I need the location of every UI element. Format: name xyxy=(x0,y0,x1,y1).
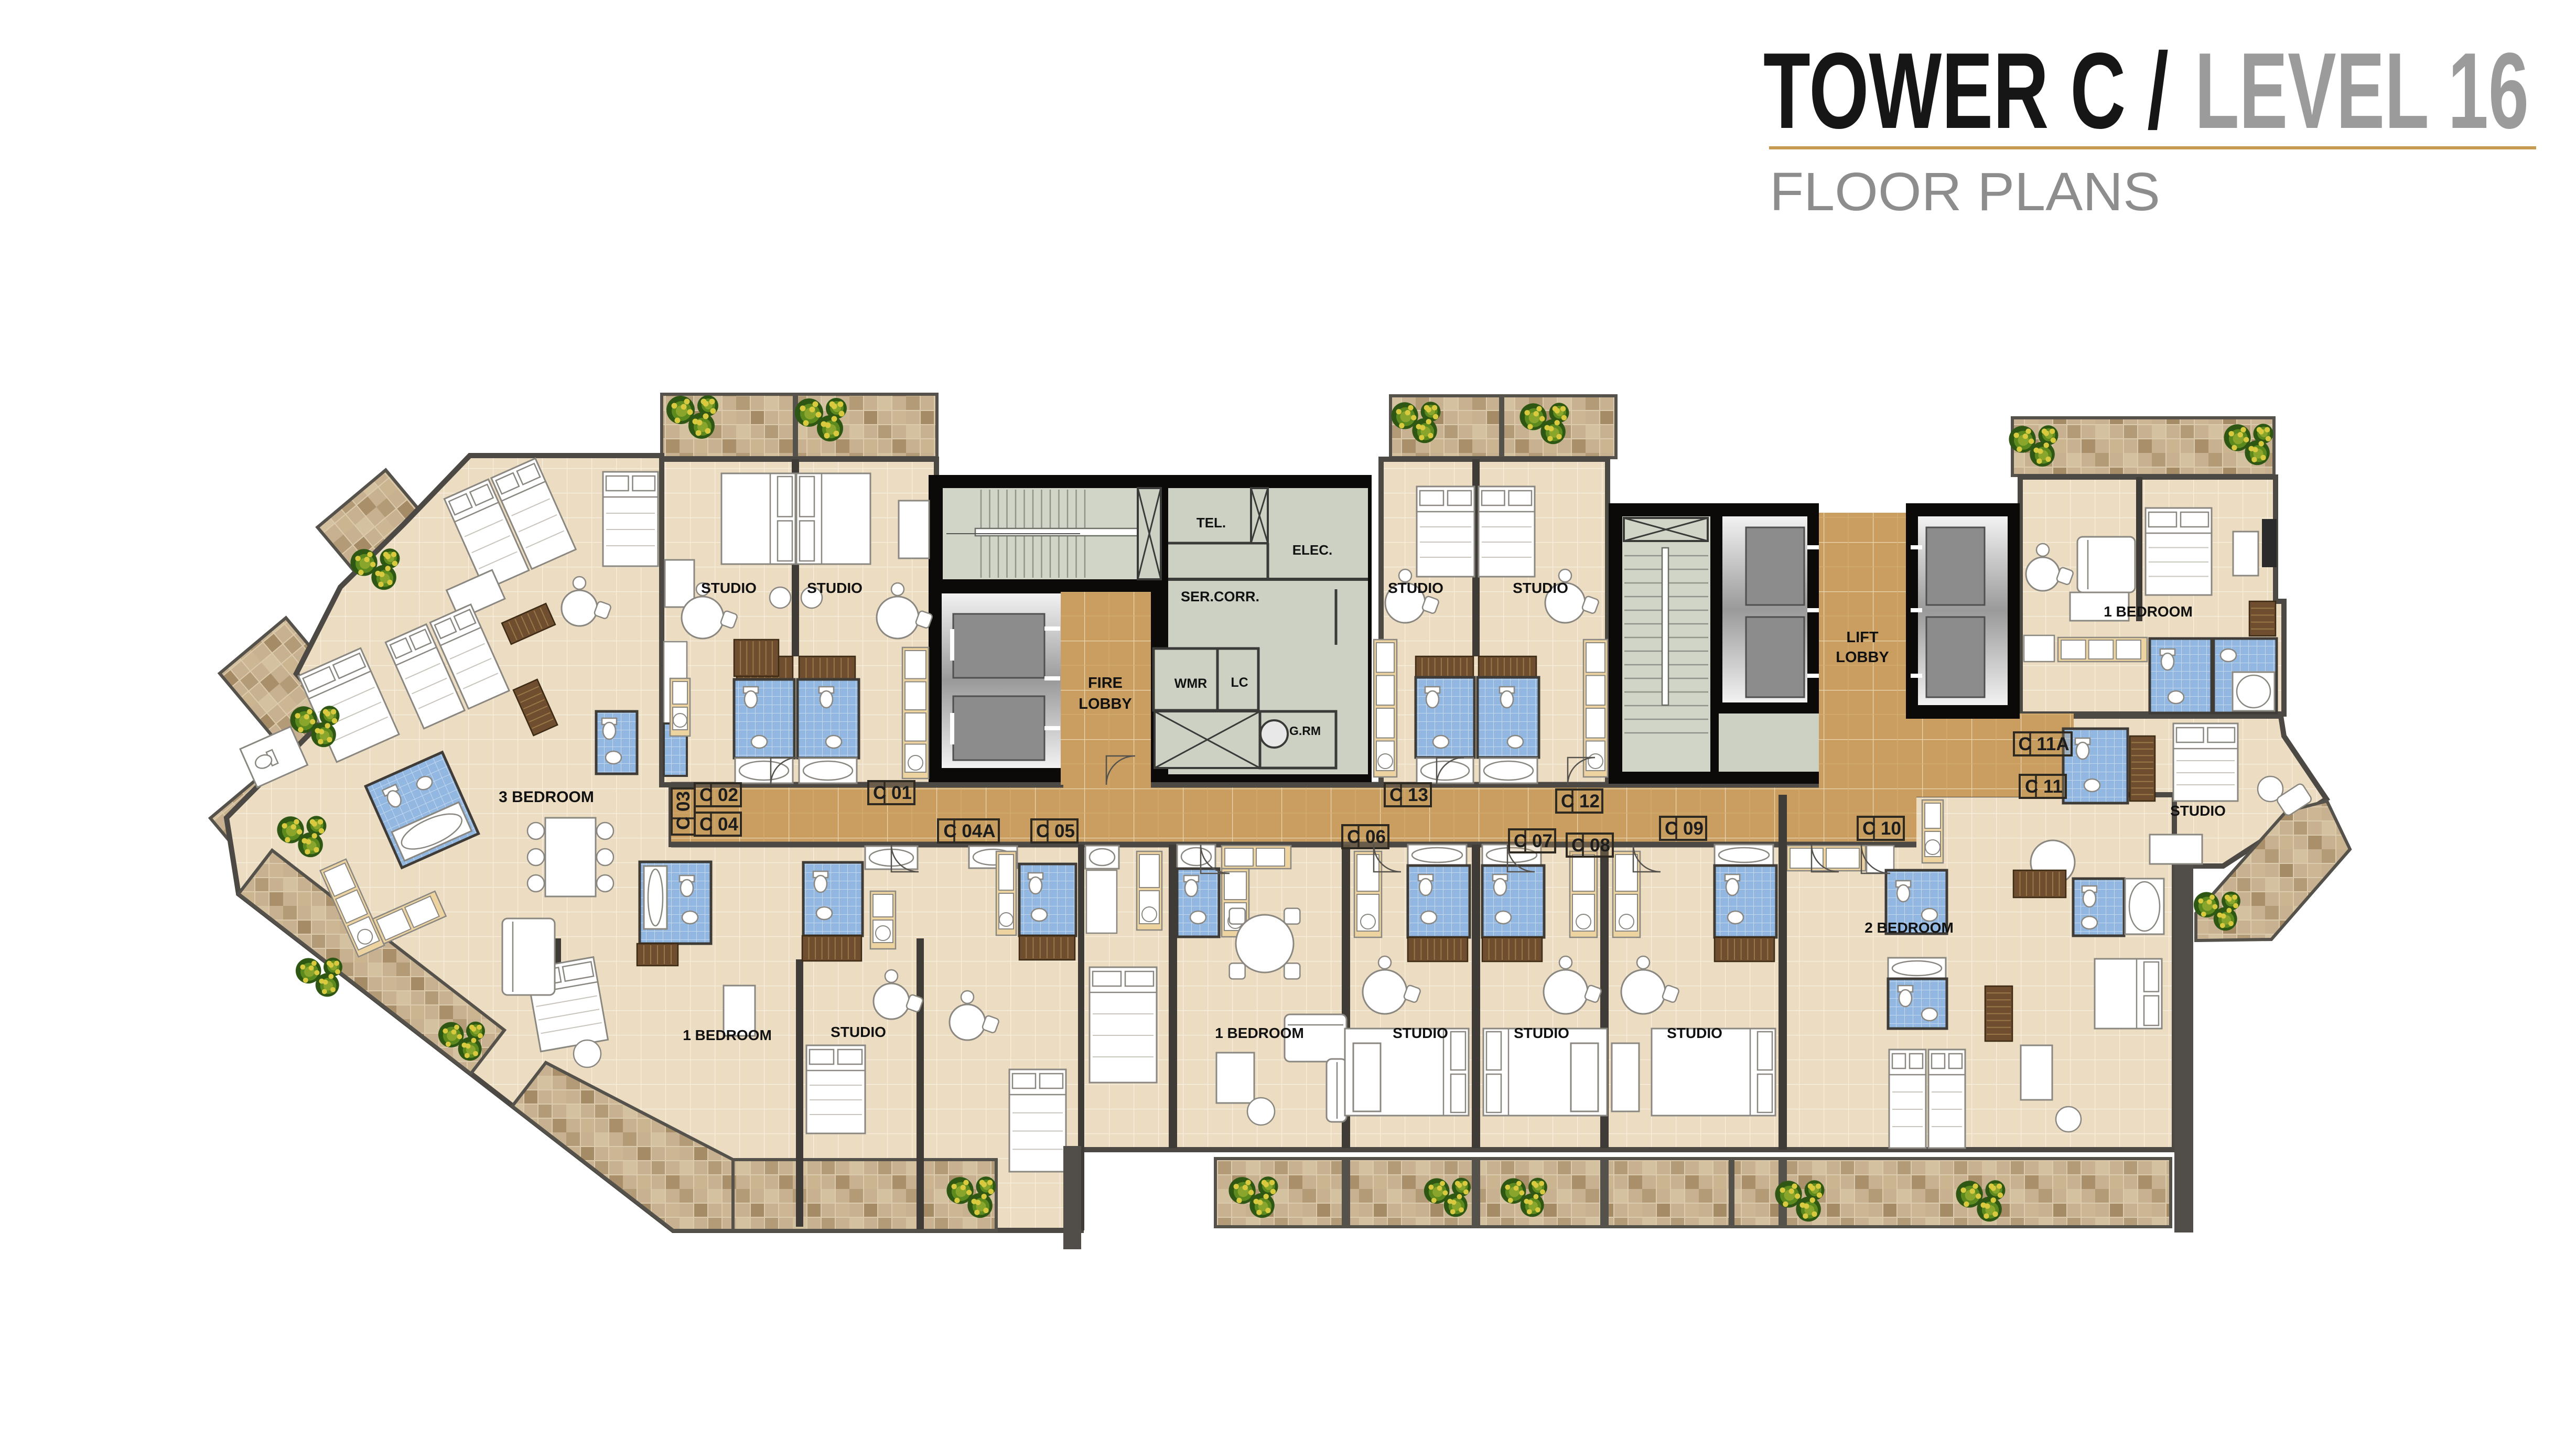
svg-text:STUDIO: STUDIO xyxy=(1388,580,1443,596)
svg-text:1 BEDROOM: 1 BEDROOM xyxy=(2104,603,2193,620)
svg-text:C 12: C 12 xyxy=(1561,791,1600,812)
svg-text:C 03: C 03 xyxy=(673,791,694,830)
svg-text:1 BEDROOM: 1 BEDROOM xyxy=(1215,1025,1304,1041)
svg-text:3 BEDROOM: 3 BEDROOM xyxy=(499,788,594,806)
svg-text:C 10: C 10 xyxy=(1862,818,1901,839)
svg-text:FLOOR PLANS: FLOOR PLANS xyxy=(1770,161,2160,222)
svg-text:C 09: C 09 xyxy=(1665,818,1704,839)
svg-text:LOBBY: LOBBY xyxy=(1079,696,1132,712)
svg-text:C 11A: C 11A xyxy=(2018,734,2069,754)
svg-text:WMR: WMR xyxy=(1174,676,1207,691)
svg-text:C 01: C 01 xyxy=(873,783,912,803)
svg-text:STUDIO: STUDIO xyxy=(831,1024,886,1040)
svg-text:TOWER C /: TOWER C / xyxy=(1763,30,2169,151)
svg-text:LC: LC xyxy=(1231,675,1248,690)
svg-text:STUDIO: STUDIO xyxy=(1514,1025,1569,1041)
svg-text:C 02: C 02 xyxy=(699,785,738,805)
svg-text:LEVEL 16: LEVEL 16 xyxy=(2195,30,2529,151)
svg-text:G.RM: G.RM xyxy=(1289,724,1321,738)
svg-text:C 08: C 08 xyxy=(1571,835,1610,856)
svg-text:C 04A: C 04A xyxy=(943,821,995,841)
svg-text:C 05: C 05 xyxy=(1036,821,1075,841)
svg-text:LIFT: LIFT xyxy=(1846,629,1878,646)
svg-text:LOBBY: LOBBY xyxy=(1836,649,1889,666)
svg-text:C 04: C 04 xyxy=(699,814,738,835)
svg-text:C 11: C 11 xyxy=(2025,776,2063,797)
svg-text:SER.CORR.: SER.CORR. xyxy=(1181,589,1259,604)
svg-text:2 BEDROOM: 2 BEDROOM xyxy=(1864,920,1954,936)
svg-text:FIRE: FIRE xyxy=(1088,675,1123,691)
svg-text:STUDIO: STUDIO xyxy=(1667,1025,1722,1041)
svg-text:STUDIO: STUDIO xyxy=(1513,580,1568,596)
svg-text:STUDIO: STUDIO xyxy=(1393,1025,1448,1041)
svg-text:STUDIO: STUDIO xyxy=(2170,803,2226,819)
svg-text:ELEC.: ELEC. xyxy=(1292,542,1333,558)
svg-text:STUDIO: STUDIO xyxy=(807,580,863,596)
svg-text:TEL.: TEL. xyxy=(1197,515,1226,531)
svg-text:C 13: C 13 xyxy=(1389,785,1428,805)
svg-text:1 BEDROOM: 1 BEDROOM xyxy=(683,1027,772,1043)
svg-text:C 07: C 07 xyxy=(1514,831,1553,851)
svg-text:C 06: C 06 xyxy=(1347,827,1386,847)
svg-text:STUDIO: STUDIO xyxy=(701,580,757,596)
